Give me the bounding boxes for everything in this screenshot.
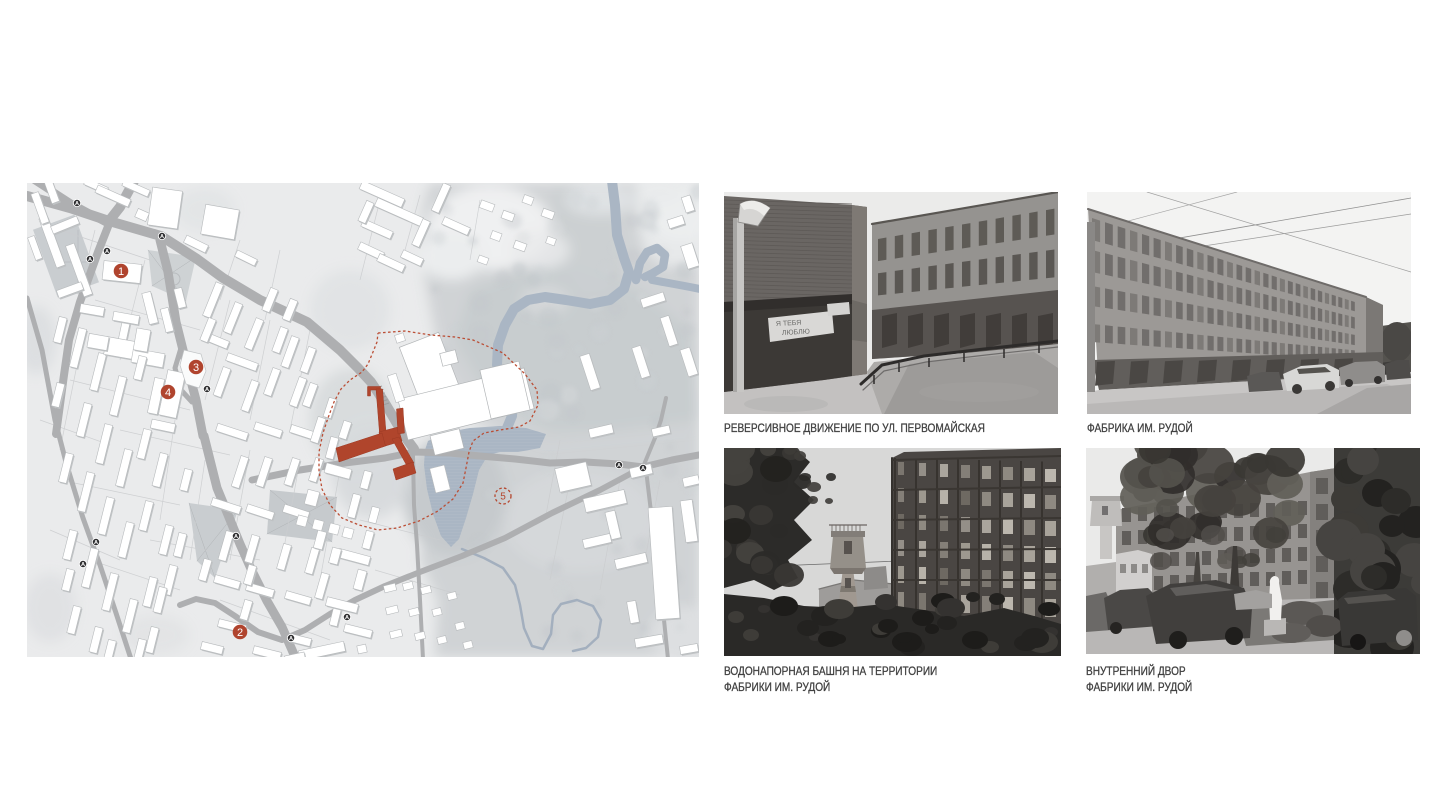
svg-text:Я ТЕБЯ: Я ТЕБЯ: [776, 320, 802, 328]
svg-text:2: 2: [237, 627, 243, 639]
svg-text:A: A: [88, 257, 92, 263]
svg-text:A: A: [234, 534, 238, 540]
svg-text:A: A: [94, 540, 98, 546]
svg-text:A: A: [617, 463, 621, 469]
svg-text:A: A: [641, 466, 645, 472]
svg-text:A: A: [75, 201, 79, 207]
svg-text:4: 4: [165, 387, 171, 399]
svg-text:3: 3: [193, 362, 199, 374]
svg-text:A: A: [105, 249, 109, 255]
svg-text:5: 5: [500, 492, 506, 503]
svg-text:A: A: [289, 636, 293, 642]
svg-text:A: A: [345, 615, 349, 621]
svg-text:1: 1: [118, 266, 124, 278]
svg-text:A: A: [160, 234, 164, 240]
svg-text:ЛЮБЛЮ: ЛЮБЛЮ: [782, 329, 810, 337]
svg-text:A: A: [81, 562, 85, 568]
svg-text:A: A: [205, 387, 209, 393]
